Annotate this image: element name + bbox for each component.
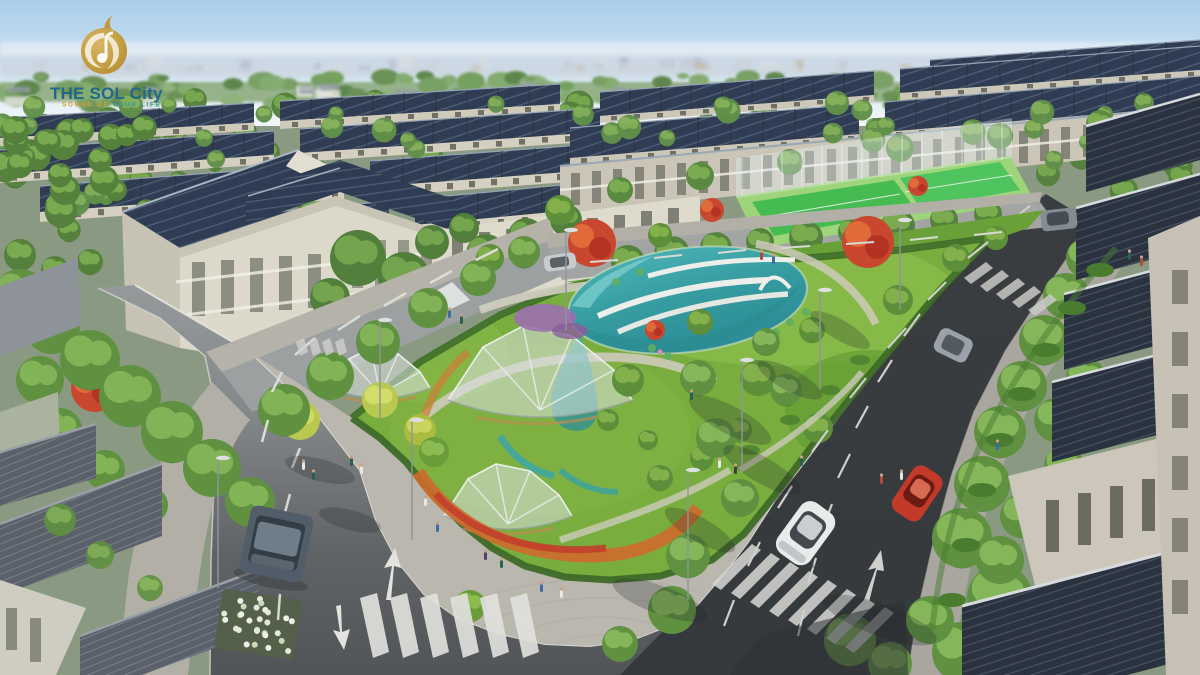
svg-text:SOUND OF YOUR LIFE: SOUND OF YOUR LIFE xyxy=(62,102,161,109)
svg-text:THE SOL City: THE SOL City xyxy=(50,84,163,103)
